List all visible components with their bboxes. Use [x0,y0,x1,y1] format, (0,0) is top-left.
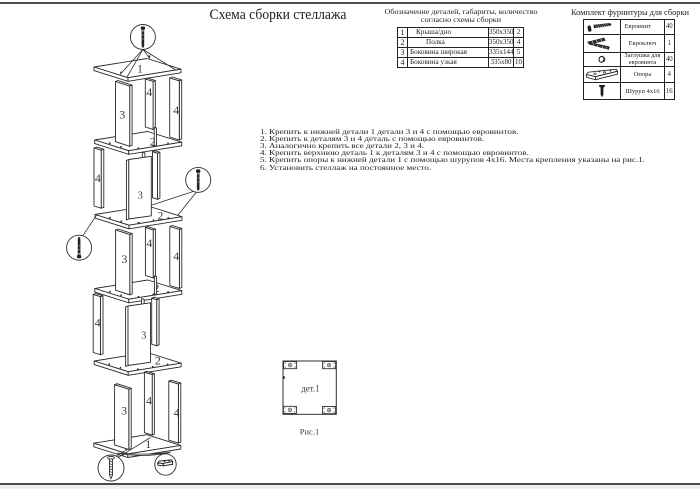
svg-text:3: 3 [119,108,125,122]
svg-text:1: 1 [137,62,143,76]
svg-text:3: 3 [141,331,146,342]
svg-text:4: 4 [146,85,152,99]
svg-text:4: 4 [95,171,101,185]
svg-text:3: 3 [121,252,127,266]
svg-text:4: 4 [173,103,179,117]
svg-text:3: 3 [138,191,143,202]
svg-text:4: 4 [174,405,180,419]
svg-text:2: 2 [157,208,163,222]
svg-text:дет.1: дет.1 [301,384,320,394]
svg-text:4: 4 [146,394,152,408]
svg-text:4: 4 [146,236,152,250]
svg-text:Рис.1: Рис.1 [300,427,319,437]
svg-text:4: 4 [95,315,101,329]
svg-text:4: 4 [173,249,179,263]
svg-text:2: 2 [155,353,161,367]
svg-text:3: 3 [121,404,127,418]
